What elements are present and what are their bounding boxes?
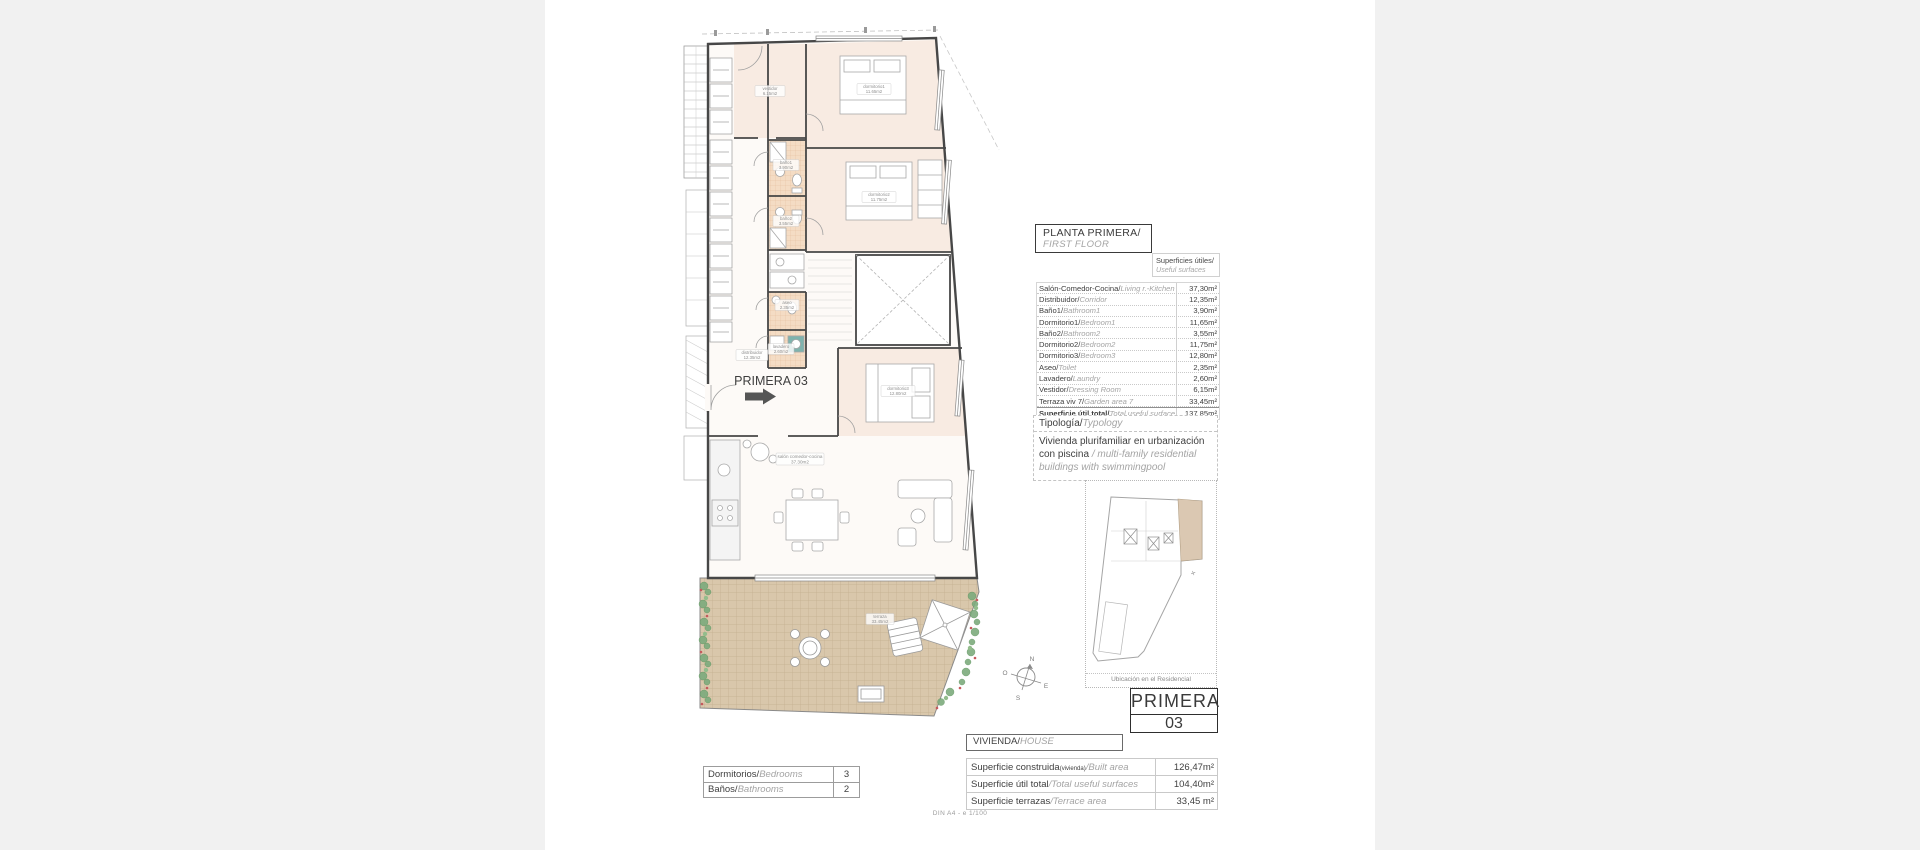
location-map-caption: Ubicación en el Residencial — [1086, 673, 1216, 687]
table-row: Dormitorio2/Bedroom211,75m² — [1037, 339, 1219, 350]
room-label: dormitorio111.65m2 — [857, 84, 891, 95]
table-row: Terraza viv 7/Garden area 733,45m² — [1037, 396, 1219, 407]
scale-note: DIN A4 - e 1/100 — [880, 810, 1040, 817]
floor-plan: vestidor6.15m2 dormitorio111.65m2 baño13… — [660, 25, 1005, 730]
svg-text:salón comedor-cocina: salón comedor-cocina — [778, 454, 823, 459]
table-row: Aseo/Toilet2,35m² — [1037, 362, 1219, 373]
summary-table: Superficie construida(vivienda)/Built ar… — [966, 758, 1218, 810]
table-row: Baños/Bathrooms 2 — [704, 782, 859, 798]
table-row: Dormitorio3/Bedroom312,80m² — [1037, 351, 1219, 362]
room-label: aseo2.35m2 — [775, 300, 799, 311]
room-label: distribuidor12.35m2 — [736, 350, 768, 361]
table-row: Distribuidor/Corridor12,35m² — [1037, 294, 1219, 305]
location-map: ✕ Ubicación en el Residencial — [1085, 480, 1217, 688]
typology-box: Tipología/Typology Vivienda plurifamilia… — [1033, 415, 1218, 481]
surfaces-caption-en: Useful surfaces — [1156, 265, 1219, 274]
svg-text:11.75m2: 11.75m2 — [871, 197, 888, 202]
room-label: vestidor6.15m2 — [755, 86, 785, 97]
svg-text:2.35m2: 2.35m2 — [780, 305, 795, 310]
surfaces-table: Salón-Comedor-Cocina/Living r.-Kitchen37… — [1036, 282, 1220, 420]
room-label: dormitorio211.75m2 — [862, 192, 896, 203]
plan-title-box: PLANTA PRIMERA/ FIRST FLOOR — [1035, 224, 1152, 253]
table-row: Baño2/Bathroom23,55m² — [1037, 328, 1219, 339]
plan-sheet-page: { "header_box": {"title": "PLANTA PRIMER… — [0, 0, 1920, 850]
svg-text:6.15m2: 6.15m2 — [763, 91, 778, 96]
terrace-floor — [700, 578, 979, 716]
closets — [710, 58, 732, 342]
svg-text:12.80m2: 12.80m2 — [890, 391, 907, 396]
typology-header: Tipología/Typology — [1034, 416, 1217, 432]
unit-number-label: 03 — [1131, 714, 1217, 732]
svg-text:33.45m2: 33.45m2 — [872, 619, 889, 624]
surfaces-caption-box: Superficies útiles/ Useful surfaces — [1152, 253, 1220, 277]
svg-text:37.30m2: 37.30m2 — [791, 460, 809, 465]
highlighted-unit — [1178, 499, 1202, 561]
table-row: Vestidor/Dressing Room6,15m² — [1037, 385, 1219, 396]
svg-text:PRIMERA 03: PRIMERA 03 — [734, 374, 808, 388]
vivienda-header: VIVIENDA/HOUSE — [966, 734, 1123, 751]
svg-text:3.55m2: 3.55m2 — [779, 221, 794, 226]
svg-text:N: N — [1030, 656, 1035, 663]
svg-text:12.35m2: 12.35m2 — [744, 355, 761, 360]
room-label: terraza33.45m2 — [866, 614, 894, 625]
stairwell-strip — [684, 46, 708, 480]
table-row: Superficie construida(vivienda)/Built ar… — [967, 759, 1217, 776]
table-row: Baño1/Bathroom13,90m² — [1037, 306, 1219, 317]
svg-text:O: O — [1002, 670, 1007, 677]
room-label: lavadero2.60m2 — [768, 344, 794, 355]
svg-text:3.90m2: 3.90m2 — [779, 165, 794, 170]
plan-subtitle: FIRST FLOOR — [1043, 239, 1151, 250]
typology-body: Vivienda plurifamiliar en urbanización c… — [1034, 432, 1217, 480]
room-label: salón comedor-cocina37.30m2 — [776, 453, 824, 465]
svg-text:2.60m2: 2.60m2 — [774, 349, 789, 354]
table-row: Lavadero/Laundry2,60m² — [1037, 373, 1219, 384]
room-label: baño13.90m2 — [773, 160, 799, 171]
table-row: Dormitorio1/Bedroom111,65m² — [1037, 317, 1219, 328]
svg-text:S: S — [1016, 695, 1021, 702]
svg-text:E: E — [1044, 683, 1049, 690]
room-label: dormitorio312.80m2 — [881, 386, 915, 397]
table-row: Superficie terrazas/Terrace area 33,45 m… — [967, 793, 1217, 810]
plan-title: PLANTA PRIMERA/ — [1043, 227, 1151, 239]
unit-number-box: PRIMERA 03 — [1130, 688, 1218, 733]
unit-mark-icon: ✕ — [1189, 570, 1196, 578]
surfaces-caption-es: Superficies útiles/ — [1156, 256, 1219, 265]
room-label: baño23.55m2 — [773, 216, 799, 227]
svg-text:11.65m2: 11.65m2 — [866, 89, 883, 94]
rooms-count-table: Dormitorios/Bedrooms 3 Baños/Bathrooms 2 — [703, 766, 860, 798]
table-row: Dormitorios/Bedrooms 3 — [704, 767, 859, 782]
table-row: Salón-Comedor-Cocina/Living r.-Kitchen37… — [1037, 283, 1219, 294]
table-row: Superficie útil total/Total useful surfa… — [967, 776, 1217, 793]
location-map-drawing: ✕ — [1086, 481, 1216, 673]
compass-icon: N E S O — [1000, 650, 1054, 702]
unit-floor-label: PRIMERA — [1131, 689, 1217, 714]
